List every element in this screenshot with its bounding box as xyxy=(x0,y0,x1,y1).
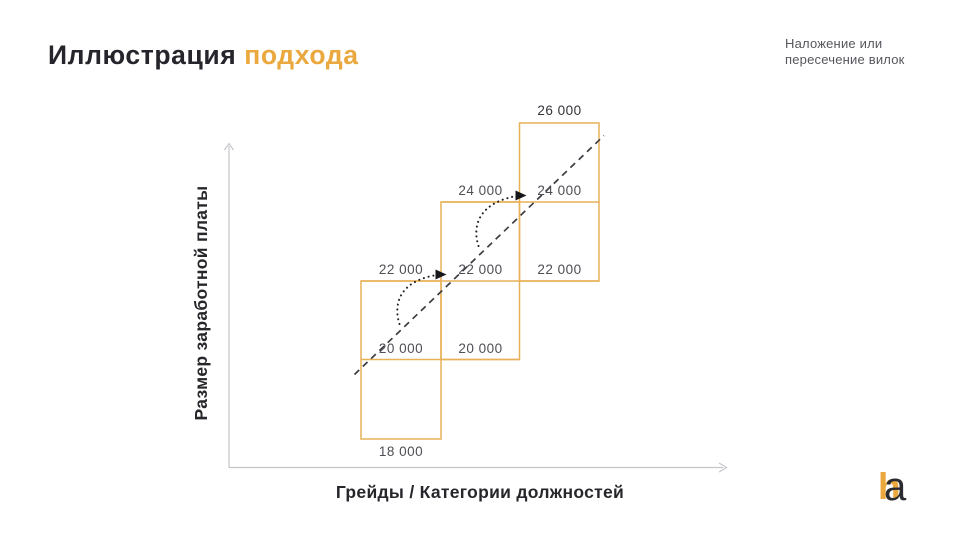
y-axis-title: Размер заработной платы xyxy=(191,186,211,421)
label-22000-grade3: 22 000 xyxy=(537,262,581,277)
logo-letter-a: a xyxy=(884,465,907,509)
label-20000-grade2: 20 000 xyxy=(458,341,502,356)
promotion-arc-2 xyxy=(476,197,514,247)
label-22000-grade2: 22 000 xyxy=(458,262,502,277)
label-20000-grade1: 20 000 xyxy=(379,341,423,356)
label-22000-grade1: 22 000 xyxy=(379,262,423,277)
presentation-slide: Иллюстрация подхода Наложение или пересе… xyxy=(0,0,960,540)
promotion-arrow-2-icon xyxy=(516,191,527,201)
salary-ranges-chart: 26 000 24 000 24 000 22 000 22 000 22 00… xyxy=(0,0,960,540)
trend-dashed-line xyxy=(355,136,605,375)
label-24000-grade2: 24 000 xyxy=(458,183,502,198)
label-18000: 18 000 xyxy=(379,444,423,459)
label-26000: 26 000 xyxy=(537,103,581,118)
x-axis-title: Грейды / Категории должностей xyxy=(336,482,624,502)
label-24000-grade3: 24 000 xyxy=(537,183,581,198)
